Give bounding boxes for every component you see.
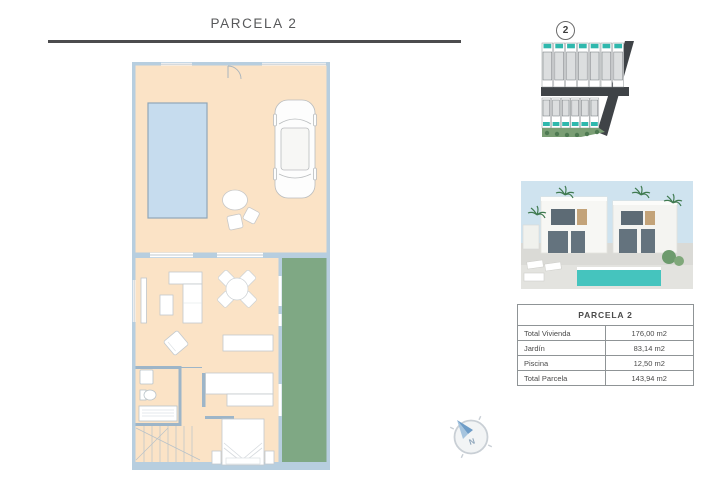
site-plan-aerial [541,41,637,137]
floor-plan [132,62,330,470]
pool [148,103,207,218]
area-table-header: PARCELA 2 [518,305,693,326]
site-plan-thumbnail [541,41,637,137]
row-value: 12,50 m2 [606,356,694,370]
row-label: Piscina [518,356,606,370]
table-row: Total Parcela 143,94 m2 [518,371,693,385]
row-value: 143,94 m2 [606,371,694,385]
row-label: Total Parcela [518,371,606,385]
table-row: Total Vivienda 176,00 m2 [518,326,693,341]
car-icon [274,100,317,198]
floor-plan-drawing [132,62,330,470]
garden-area [282,258,327,462]
villa-render-image [521,181,693,289]
plot-number-badge: 2 [556,21,575,40]
table-row: Piscina 12,50 m2 [518,356,693,371]
row-value: 83,14 m2 [606,341,694,355]
row-label: Jardín [518,341,606,355]
table-row: Jardín 83,14 m2 [518,341,693,356]
area-table: PARCELA 2 Total Vivienda 176,00 m2 Jardí… [517,304,694,386]
row-value: 176,00 m2 [606,326,694,340]
page-title: PARCELA 2 [48,16,460,31]
render-pool [577,267,661,286]
villa-render [521,181,693,289]
plot-row-top [542,43,624,87]
row-label: Total Vivienda [518,326,606,340]
site-garden-fringe [542,128,605,137]
plot-row-bottom [542,98,599,128]
villa-left [541,197,607,253]
compass-icon: N [444,410,498,464]
villa-right [613,201,677,253]
title-underline [48,40,461,43]
